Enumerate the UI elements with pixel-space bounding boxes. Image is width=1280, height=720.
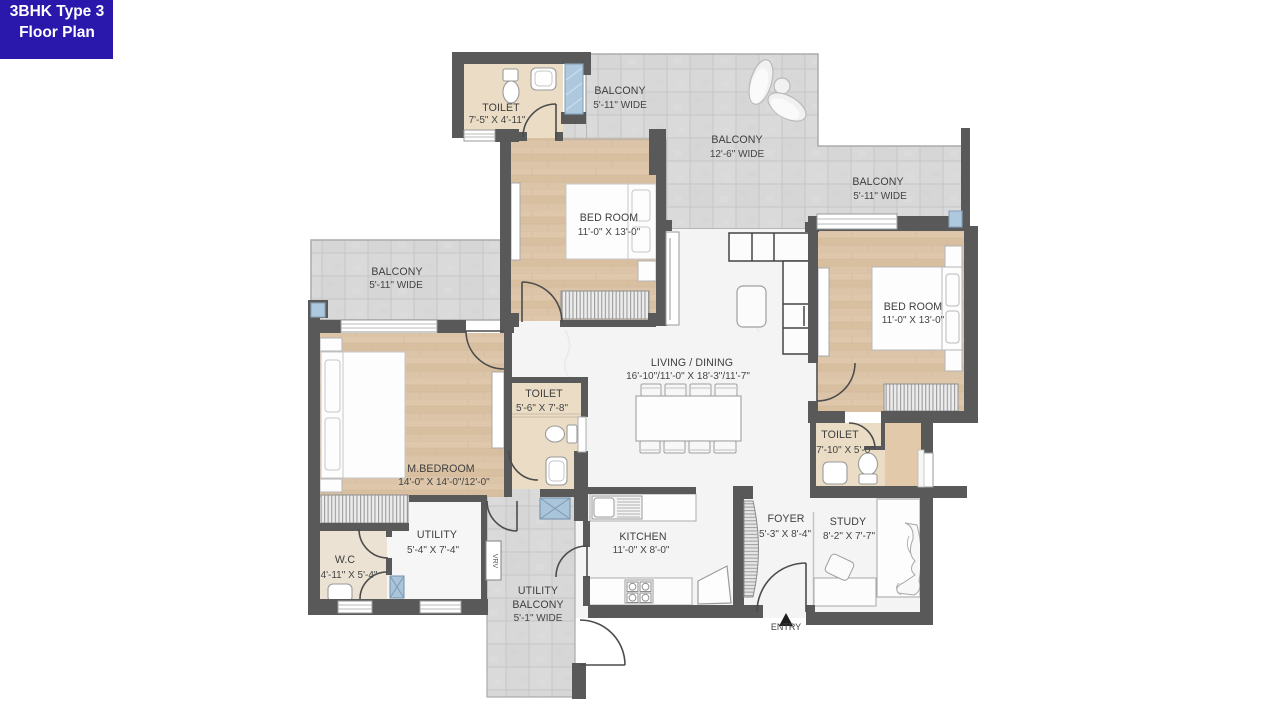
svg-text:11'-0" X 13'-0": 11'-0" X 13'-0"	[578, 227, 641, 238]
svg-text:BALCONY: BALCONY	[594, 85, 645, 97]
svg-text:7'-10" X 5'-0": 7'-10" X 5'-0"	[816, 445, 874, 456]
svg-text:TOILET: TOILET	[525, 388, 563, 400]
svg-text:UTILITY: UTILITY	[417, 529, 457, 541]
svg-text:12'-6" WIDE: 12'-6" WIDE	[710, 149, 765, 160]
svg-text:TOILET: TOILET	[821, 429, 859, 441]
svg-text:11'-0" X 13'-0": 11'-0" X 13'-0"	[882, 315, 945, 326]
svg-text:BALCONY: BALCONY	[371, 266, 422, 278]
svg-text:4'-11" X 5'-4": 4'-11" X 5'-4"	[321, 570, 378, 581]
svg-text:11'-0" X 8'-0": 11'-0" X 8'-0"	[613, 545, 670, 556]
svg-text:14'-0" X 14'-0"/12'-0": 14'-0" X 14'-0"/12'-0"	[398, 477, 490, 488]
svg-text:5'-6" X 7'-8": 5'-6" X 7'-8"	[516, 403, 569, 414]
svg-text:BALCONY: BALCONY	[512, 599, 563, 611]
svg-text:7'-5" X 4'-11": 7'-5" X 4'-11"	[469, 115, 526, 126]
svg-text:W.C: W.C	[335, 554, 356, 566]
svg-text:3BHK Type 3: 3BHK Type 3	[10, 3, 105, 20]
svg-text:ENTRY: ENTRY	[771, 622, 801, 632]
svg-text:STUDY: STUDY	[830, 516, 866, 528]
svg-text:KITCHEN: KITCHEN	[619, 531, 666, 543]
svg-text:TOILET: TOILET	[482, 102, 520, 114]
svg-text:FOYER: FOYER	[768, 513, 805, 525]
svg-text:M.BEDROOM: M.BEDROOM	[407, 463, 474, 475]
svg-text:5'-11" WIDE: 5'-11" WIDE	[369, 280, 423, 291]
svg-text:BALCONY: BALCONY	[852, 176, 903, 188]
svg-text:5'-3" X 8'-4": 5'-3" X 8'-4"	[759, 529, 812, 540]
svg-text:16'-10"/11'-0" X 18'-3"/11'-7": 16'-10"/11'-0" X 18'-3"/11'-7"	[626, 371, 750, 382]
svg-text:Floor Plan: Floor Plan	[19, 24, 95, 41]
svg-text:5'-11" WIDE: 5'-11" WIDE	[853, 191, 907, 202]
svg-text:VRV: VRV	[491, 554, 498, 569]
svg-text:5'-4" X 7'-4": 5'-4" X 7'-4"	[407, 545, 460, 556]
svg-text:BALCONY: BALCONY	[711, 134, 762, 146]
svg-text:UTILITY: UTILITY	[518, 585, 558, 597]
svg-text:BED ROOM: BED ROOM	[580, 212, 638, 224]
svg-text:BED ROOM: BED ROOM	[884, 301, 942, 313]
svg-text:5'-1" WIDE: 5'-1" WIDE	[514, 613, 563, 624]
svg-text:8'-2" X 7'-7": 8'-2" X 7'-7"	[823, 531, 876, 542]
svg-text:5'-11" WIDE: 5'-11" WIDE	[593, 100, 647, 111]
svg-text:LIVING / DINING: LIVING / DINING	[651, 357, 733, 369]
